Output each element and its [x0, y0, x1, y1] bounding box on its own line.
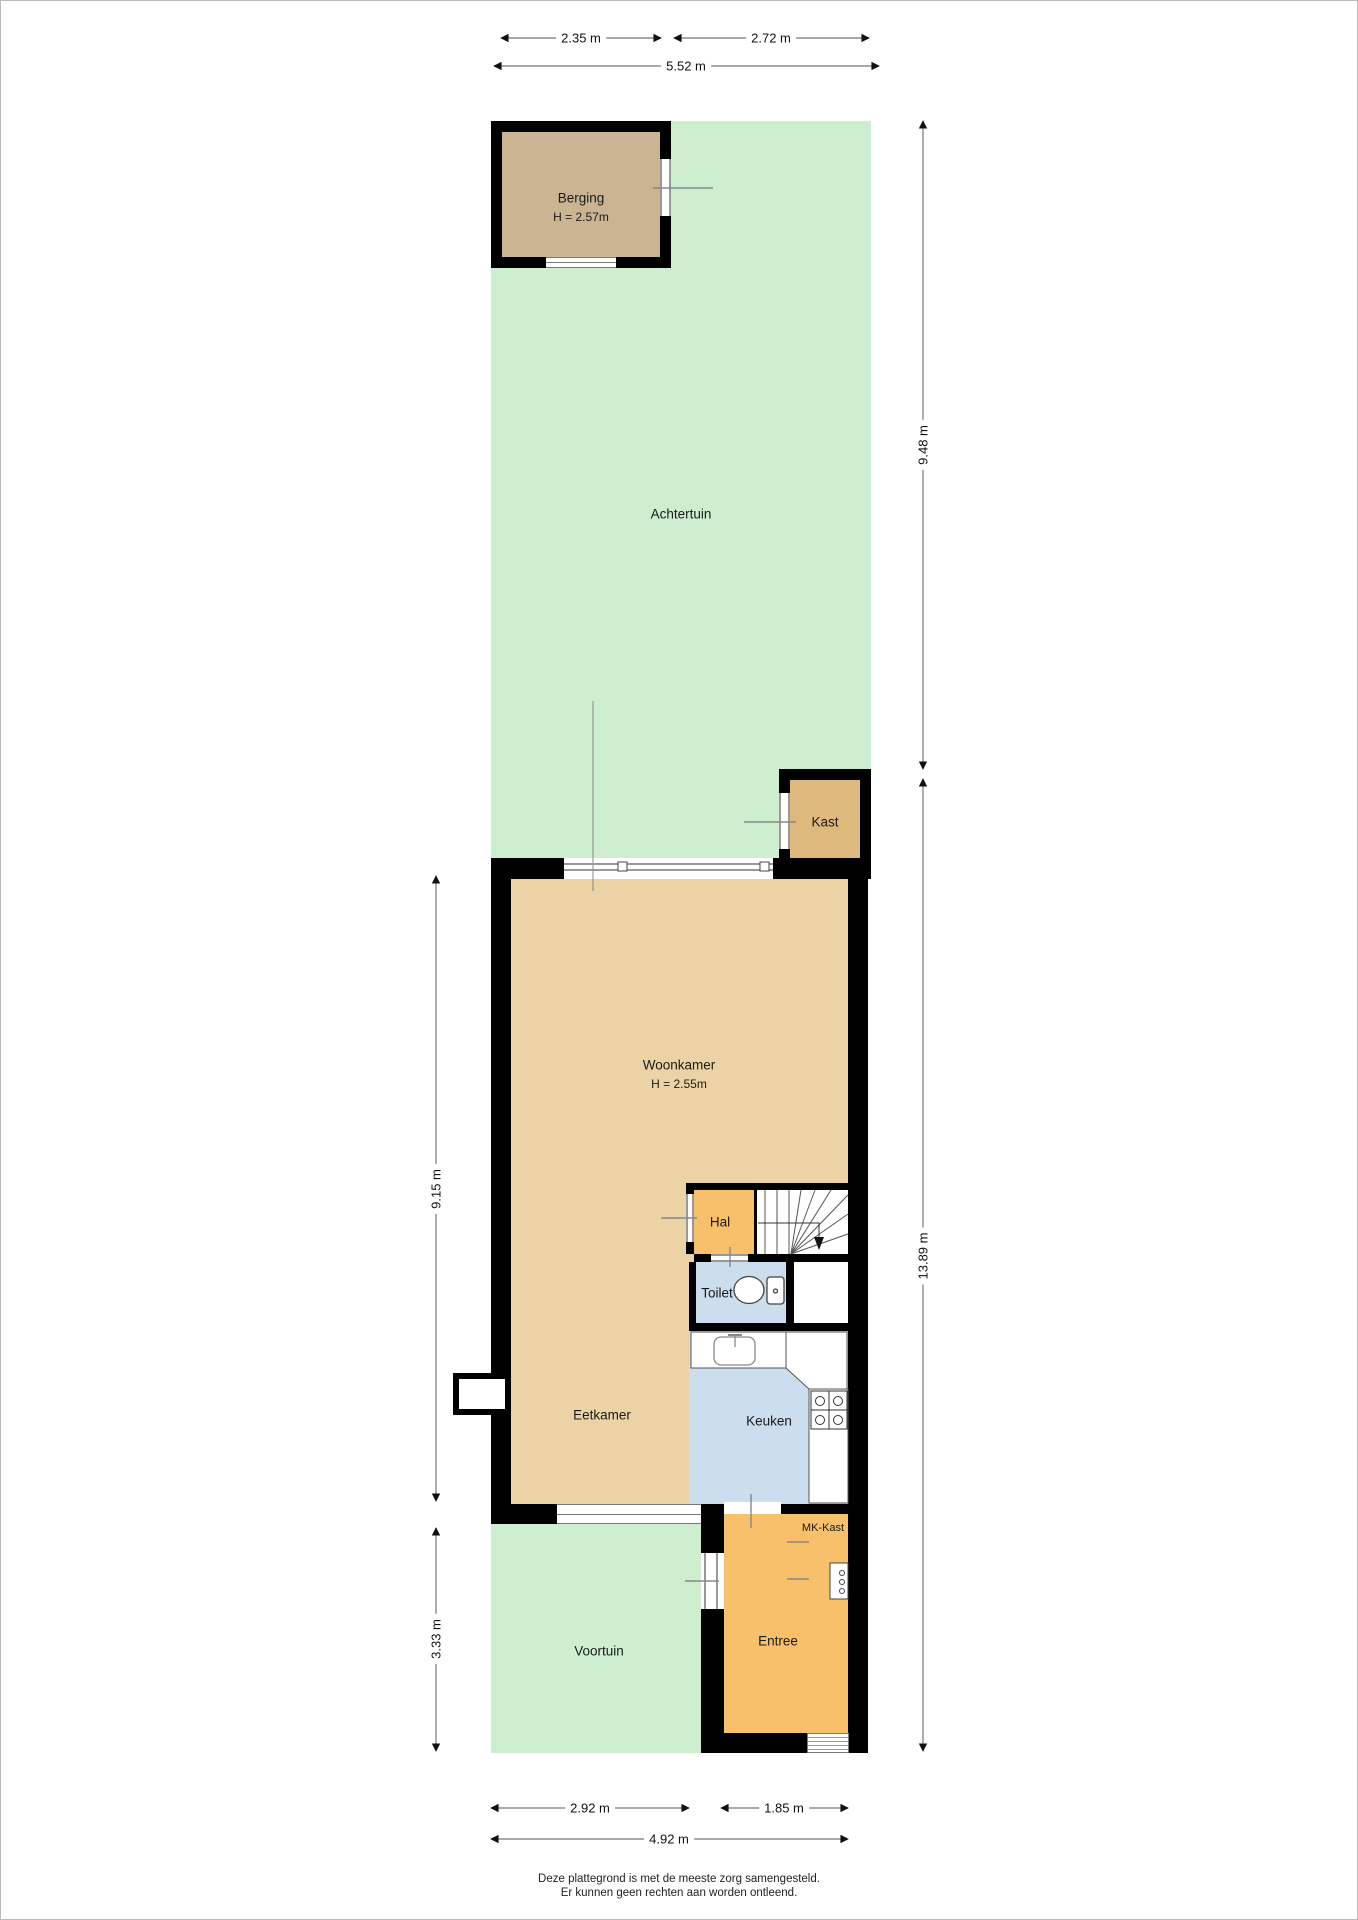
- keuken-label: Keuken: [746, 1414, 792, 1429]
- left-wall-niche: [453, 1373, 511, 1415]
- toilet-threshold: [711, 1254, 748, 1262]
- entree-left-wall-upper: [701, 1504, 724, 1553]
- hal-door: [686, 1194, 694, 1242]
- voortuin-area: [491, 1524, 701, 1753]
- mk-kast-label: MK-Kast: [802, 1522, 844, 1534]
- entree-left-wall-lower: [701, 1609, 724, 1733]
- achtertuin-label: Achtertuin: [651, 507, 712, 522]
- room-entree: [724, 1514, 848, 1733]
- berging-door: [660, 159, 671, 216]
- entree-side-door: [704, 1553, 718, 1609]
- stairs-hal-divider: [754, 1190, 757, 1254]
- voortuin-label: Voortuin: [574, 1644, 624, 1659]
- mk-kast-top-wall: [796, 1504, 848, 1514]
- disclaimer-line-1: Deze plattegrond is met de meeste zorg s…: [1, 1872, 1357, 1886]
- dim-entree-width: 1.85 m: [759, 1801, 809, 1816]
- hal-top-wall: [686, 1183, 848, 1190]
- floor-plan: Berging H = 2.57m Achtertuin Kast Woonka…: [0, 0, 1358, 1920]
- understairs-closet: [794, 1262, 848, 1323]
- woonkamer-height-label: H = 2.55m: [651, 1077, 707, 1091]
- eetkamer-label: Eetkamer: [573, 1408, 631, 1423]
- dim-achtertuin-depth: 9.48 m: [916, 420, 931, 470]
- toilet-bottom-wall: [689, 1323, 848, 1331]
- woonkamer-label: Woonkamer: [643, 1058, 716, 1073]
- toilet-label: Toilet: [701, 1286, 733, 1301]
- dim-voortuin-depth: 3.33 m: [429, 1614, 444, 1664]
- disclaimer-line-2: Er kunnen geen rechten aan worden ontlee…: [1, 1886, 1357, 1900]
- berging-window: [546, 257, 616, 268]
- toilet-left-wall: [689, 1262, 696, 1323]
- dim-plot-top-width: 5.52 m: [661, 59, 711, 74]
- disclaimer: Deze plattegrond is met de meeste zorg s…: [1, 1872, 1357, 1900]
- dim-achtertuin-top-width: 2.72 m: [746, 31, 796, 46]
- dim-house-depth: 9.15 m: [429, 1164, 444, 1214]
- front-door: [807, 1733, 849, 1753]
- stairs-area: [757, 1190, 848, 1254]
- toilet-closet-divider: [786, 1262, 794, 1323]
- entree-label: Entree: [758, 1634, 798, 1649]
- sliding-door-opening: [564, 858, 773, 879]
- house-left-wall: [491, 879, 511, 1524]
- kast-label: Kast: [811, 815, 838, 830]
- berging-height-label: H = 2.57m: [553, 210, 609, 224]
- dim-berging-width: 2.35 m: [556, 31, 606, 46]
- hal-label: Hal: [710, 1215, 730, 1230]
- eetkamer-front-window: [557, 1504, 701, 1524]
- dim-voortuin-width: 2.92 m: [565, 1801, 615, 1816]
- berging-label: Berging: [558, 191, 605, 206]
- dim-house-width: 4.92 m: [644, 1832, 694, 1847]
- kast-door: [779, 793, 790, 849]
- dim-house-plus-voortuin-depth: 13.89 m: [916, 1228, 931, 1285]
- house-right-wall: [848, 858, 868, 1753]
